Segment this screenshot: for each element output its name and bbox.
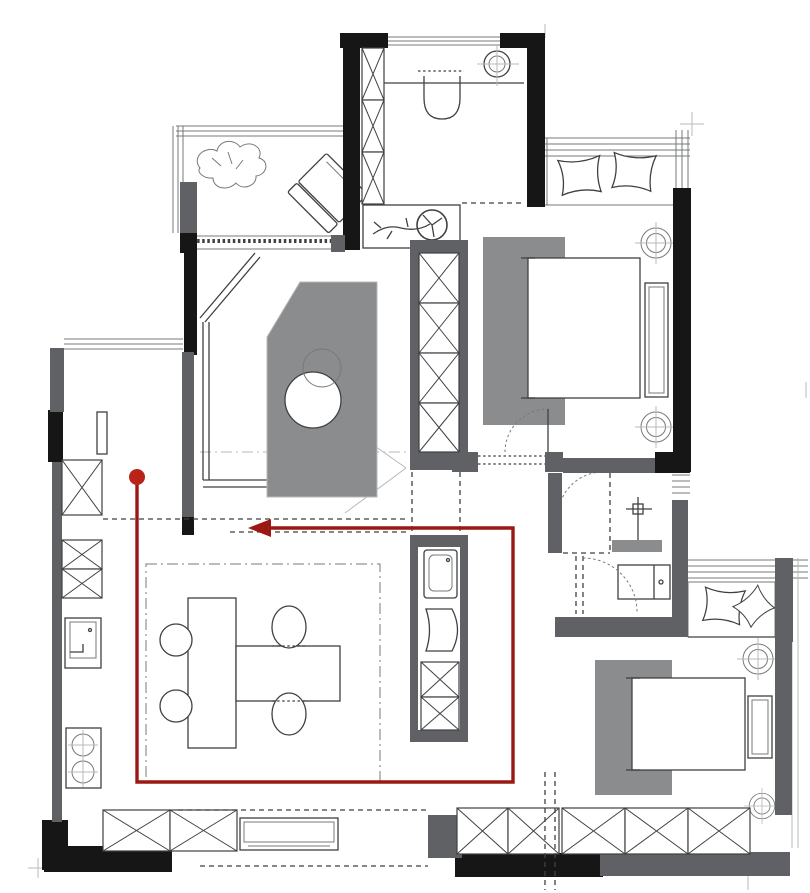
- bedroom-1-bench: [645, 283, 668, 397]
- hall-cabinet-lower: [421, 662, 459, 730]
- dining-chair: [160, 624, 192, 656]
- balcony: [197, 141, 367, 233]
- top-bathroom-cabinet: [362, 48, 384, 204]
- kitchen-sink-large: [285, 372, 341, 428]
- route-start-dot: [129, 469, 145, 485]
- round-basin-icon: [477, 44, 519, 86]
- bedroom-1-lamp-bottom: [635, 406, 677, 448]
- bedroom-1-lamp-top: [635, 222, 677, 264]
- tv-wall-cabinet: [103, 810, 237, 851]
- dining-chair: [272, 693, 306, 735]
- hall-fixture: [426, 609, 458, 651]
- route-arrow-icon: [248, 519, 271, 537]
- bay-pillows-bottom: [701, 585, 776, 628]
- bedroom-1-bed: [483, 222, 677, 448]
- top-bathroom: [363, 44, 524, 248]
- foyer-panel: [97, 412, 107, 454]
- shower-shelf: [612, 540, 662, 552]
- bay-pillows-top: [558, 151, 656, 196]
- dining-chair: [160, 690, 192, 722]
- entry-and-bedroom2-wardrobe: [457, 808, 750, 854]
- kitchen-counter: [267, 282, 377, 497]
- plant-icon: [197, 141, 266, 188]
- bedroom-2-lamp-top: [737, 638, 779, 680]
- foyer-cabinet: [62, 460, 102, 598]
- shower-icon: [626, 497, 652, 540]
- dining-chair: [272, 606, 306, 648]
- central-wardrobe: [419, 253, 459, 452]
- foyer-sink: [65, 618, 101, 668]
- floor-plan: [0, 0, 810, 893]
- bathroom: [558, 472, 670, 614]
- bathroom-door-arc-top: [558, 472, 603, 517]
- stove-icon: [66, 728, 101, 788]
- dining-set: [160, 598, 340, 748]
- tv-console: [240, 818, 338, 850]
- vanity: [618, 565, 670, 599]
- bedroom-2-bed: [595, 638, 780, 824]
- hall-basin: [424, 550, 457, 598]
- floor-plan-drawing: [0, 0, 810, 893]
- dining-sideboard: [188, 598, 236, 748]
